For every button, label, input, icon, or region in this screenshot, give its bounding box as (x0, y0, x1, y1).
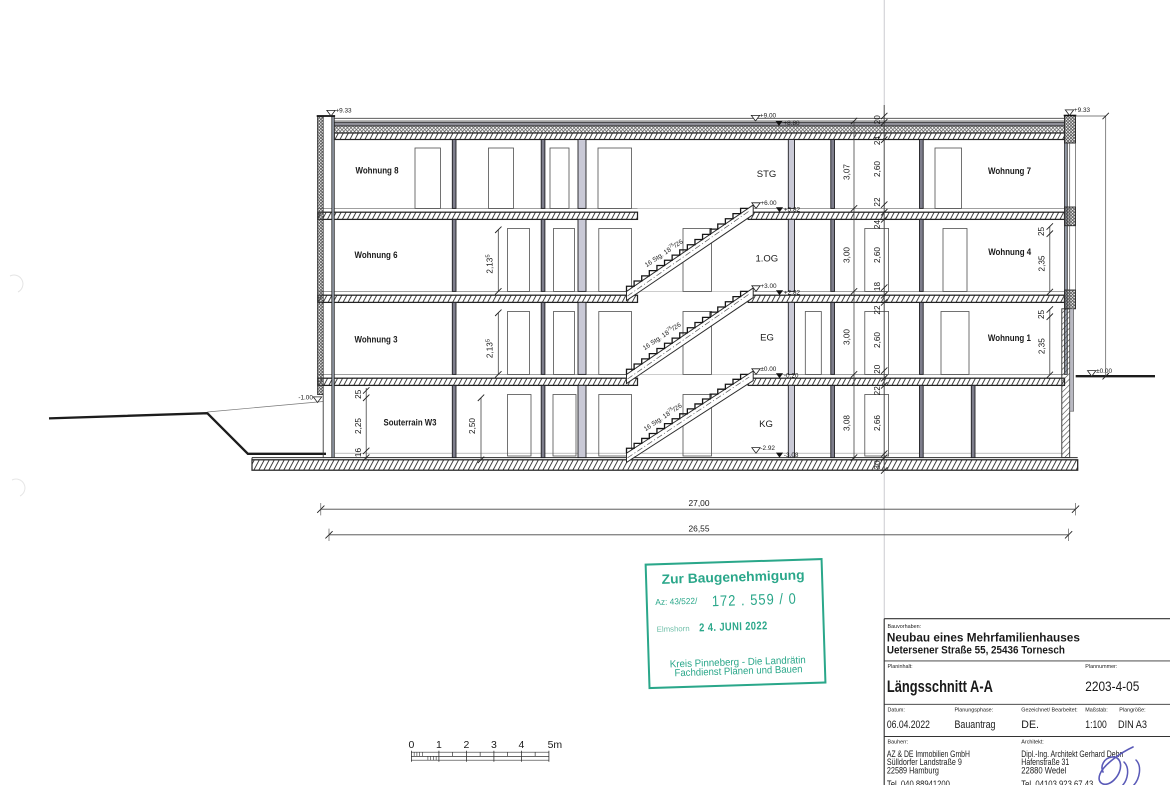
svg-text:+9.00: +9.00 (760, 113, 777, 120)
svg-text:4: 4 (518, 739, 524, 751)
svg-text:1: 1 (436, 739, 442, 751)
svg-text:2: 2 (463, 739, 469, 751)
svg-text:20: 20 (873, 115, 882, 125)
svg-text:+6.00: +6.00 (760, 200, 777, 207)
svg-text:2,25: 2,25 (354, 418, 363, 434)
svg-text:22589 Hamburg: 22589 Hamburg (887, 765, 939, 775)
svg-text:DE.: DE. (1021, 719, 1039, 731)
svg-text:EG: EG (760, 333, 774, 344)
svg-text:3,00: 3,00 (843, 247, 852, 263)
svg-text:Bauherr:: Bauherr: (888, 740, 909, 746)
svg-text:3: 3 (491, 739, 497, 751)
svg-text:2,60: 2,60 (873, 247, 882, 263)
svg-text:16: 16 (354, 448, 363, 458)
svg-text:2,35: 2,35 (1038, 255, 1047, 271)
svg-text:Planungsphase:: Planungsphase: (955, 708, 994, 714)
svg-text:Bauantrag: Bauantrag (955, 719, 996, 731)
svg-text:18: 18 (873, 282, 882, 292)
svg-text:Elmshorn: Elmshorn (657, 624, 690, 634)
svg-text:25: 25 (354, 389, 363, 399)
svg-text:172 . 559 / 0: 172 . 559 / 0 (712, 591, 797, 611)
svg-text:27,00: 27,00 (689, 498, 710, 508)
svg-text:Tel. 04103 923 67 43: Tel. 04103 923 67 43 (1021, 779, 1093, 785)
svg-text:24: 24 (873, 220, 882, 230)
svg-text:Längsschnitt A-A: Längsschnitt A-A (887, 677, 993, 696)
svg-text:3,08: 3,08 (843, 415, 852, 431)
svg-text:-1.00: -1.00 (298, 394, 313, 401)
svg-text:+2.82: +2.82 (784, 290, 801, 297)
svg-text:Maßstab:: Maßstab: (1085, 708, 1107, 714)
svg-text:Datum:: Datum: (888, 708, 905, 714)
svg-text:Bauvorhaben:: Bauvorhaben: (888, 624, 922, 630)
svg-text:5m: 5m (548, 739, 563, 751)
svg-text:Wohnung 3: Wohnung 3 (355, 335, 398, 345)
svg-text:+5.82: +5.82 (784, 207, 801, 214)
svg-text:Tel. 040 88941200: Tel. 040 88941200 (887, 779, 950, 785)
svg-text:06.04.2022: 06.04.2022 (887, 719, 930, 731)
svg-text:25: 25 (1037, 310, 1046, 320)
svg-text:25: 25 (1037, 227, 1046, 237)
svg-text:30: 30 (873, 460, 882, 470)
svg-text:3,00: 3,00 (843, 329, 852, 345)
svg-text:KG: KG (759, 419, 773, 430)
svg-text:1:100: 1:100 (1085, 719, 1107, 731)
svg-text:Wohnung 4: Wohnung 4 (988, 247, 1032, 257)
svg-text:Uetersener Straße 55, 25436 To: Uetersener Straße 55, 25436 Tornesch (887, 644, 1065, 656)
svg-text:24: 24 (873, 136, 882, 146)
svg-text:22: 22 (873, 305, 882, 315)
svg-text:1.OG: 1.OG (755, 254, 778, 265)
svg-text:2 4. JUNI 2022: 2 4. JUNI 2022 (699, 620, 768, 634)
svg-text:±0.00: ±0.00 (760, 366, 776, 373)
svg-text:2,66: 2,66 (873, 415, 882, 431)
svg-text:0: 0 (408, 739, 414, 751)
svg-text:2,50: 2,50 (468, 418, 477, 434)
svg-text:Wohnung 7: Wohnung 7 (988, 166, 1031, 176)
svg-text:-2.92: -2.92 (760, 445, 775, 452)
svg-text:+9.33: +9.33 (335, 108, 352, 115)
svg-text:2,35: 2,35 (1038, 338, 1047, 354)
svg-text:2203-4-05: 2203-4-05 (1085, 679, 1139, 695)
svg-text:Wohnung 6: Wohnung 6 (355, 250, 398, 260)
svg-text:+8.80: +8.80 (783, 120, 800, 127)
svg-text:2,60: 2,60 (873, 332, 882, 348)
svg-text:STG: STG (757, 169, 777, 180)
svg-text:±0.00: ±0.00 (1096, 368, 1112, 375)
svg-text:+9.33: +9.33 (1074, 107, 1091, 114)
svg-text:Planinhalt:: Planinhalt: (888, 664, 913, 670)
svg-text:Souterrain W3: Souterrain W3 (384, 418, 437, 428)
svg-text:Neubau eines Mehrfamilienhause: Neubau eines Mehrfamilienhauses (887, 630, 1080, 644)
svg-text:26,55: 26,55 (689, 523, 710, 533)
svg-text:-0.20: -0.20 (784, 373, 799, 380)
svg-text:Gezeichnet/ Bearbeitet:: Gezeichnet/ Bearbeitet: (1021, 708, 1077, 714)
svg-text:Wohnung 1: Wohnung 1 (988, 333, 1031, 343)
svg-text:Az: 43/522/: Az: 43/522/ (655, 596, 698, 607)
svg-text:Wohnung 8: Wohnung 8 (356, 166, 399, 176)
svg-text:DIN A3: DIN A3 (1118, 719, 1147, 731)
svg-text:22880 Wedel: 22880 Wedel (1021, 765, 1066, 775)
svg-text:20: 20 (873, 364, 882, 374)
svg-text:Architekt:: Architekt: (1021, 740, 1043, 746)
svg-text:3,07: 3,07 (843, 164, 852, 180)
svg-text:Plannummer:: Plannummer: (1085, 664, 1117, 670)
svg-text:-3.08: -3.08 (784, 452, 799, 459)
svg-text:Plangröße:: Plangröße: (1119, 708, 1145, 714)
svg-text:2,60: 2,60 (873, 161, 882, 177)
svg-text:22: 22 (873, 197, 882, 207)
svg-text:22: 22 (873, 386, 882, 396)
svg-text:+3.00: +3.00 (760, 283, 777, 290)
